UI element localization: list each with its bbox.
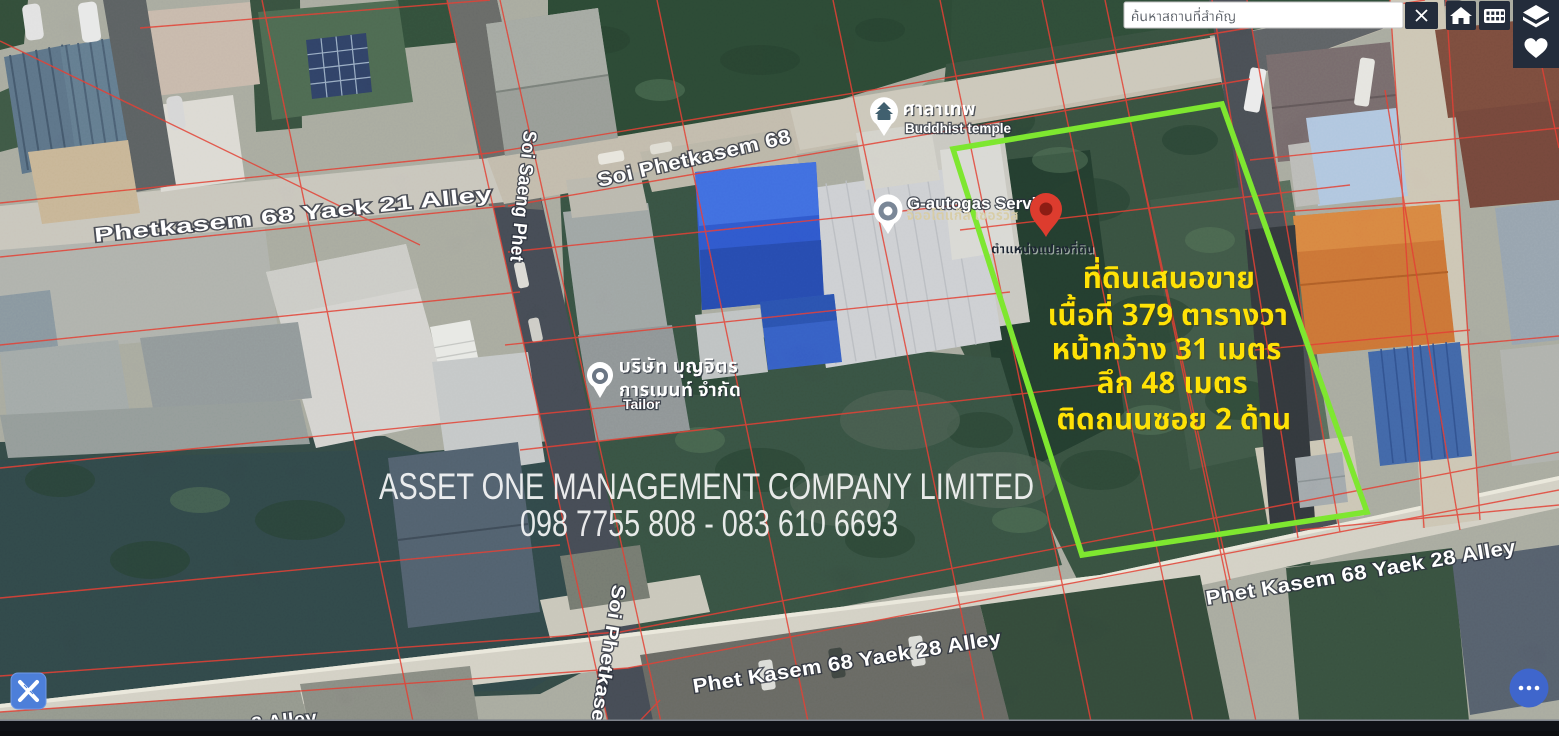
svg-text:Tailor: Tailor (623, 396, 661, 412)
svg-text:ASSET ONE MANAGEMENT COMPANY L: ASSET ONE MANAGEMENT COMPANY LIMITED (379, 466, 1034, 507)
svg-text:Buddhist temple: Buddhist temple (905, 120, 1011, 136)
svg-text:098 7755 808 - 083 610 6693: 098 7755 808 - 083 610 6693 (520, 503, 898, 544)
